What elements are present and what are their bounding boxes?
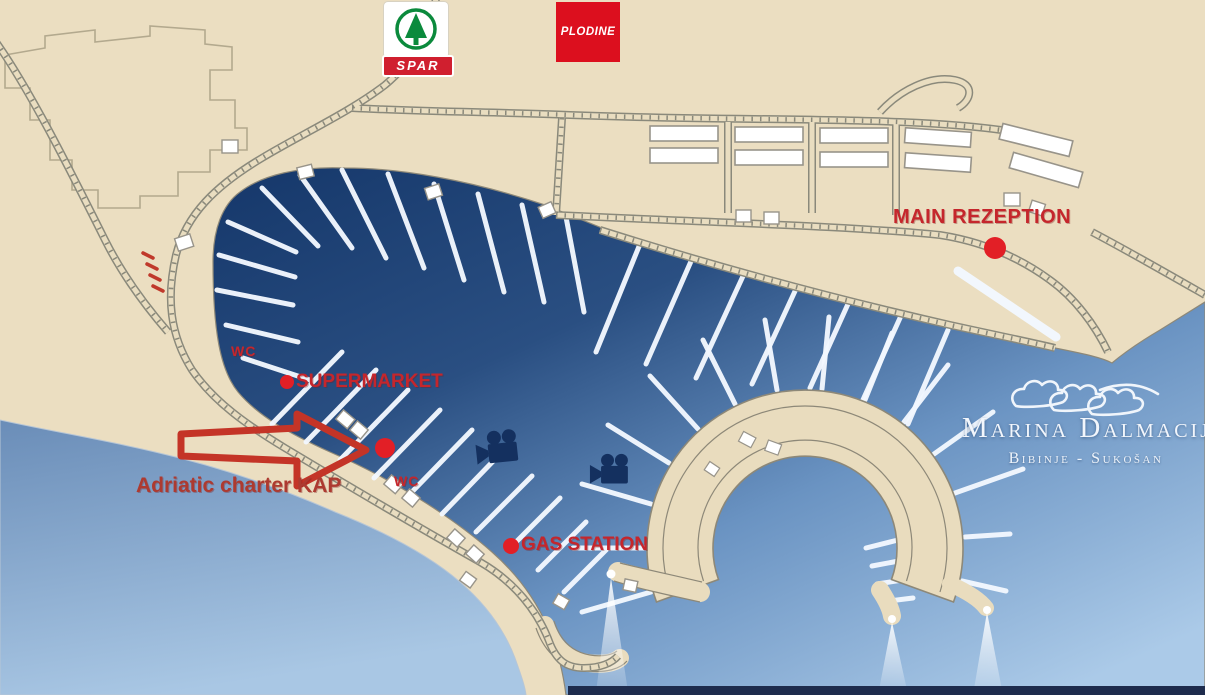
poi-label-wc-lower: WC (394, 473, 419, 489)
spar-logo: SPAR (384, 2, 448, 74)
main-reception-marker[interactable] (984, 237, 1006, 259)
poi-label-gas-station[interactable]: GAS STATION (521, 534, 648, 556)
spar-logo-label: SPAR (382, 55, 454, 77)
poi-label-main-reception[interactable]: MAIN REZEPTION (893, 206, 1071, 229)
adriatic-charter-kap-marker[interactable] (375, 438, 395, 458)
spar-tree-icon (384, 2, 448, 58)
marina-name-title: Marina Dalmacija (962, 412, 1205, 445)
supermarket-marker[interactable] (280, 375, 294, 389)
horseshoe-east-leg (880, 590, 892, 616)
marina-subtitle: Bibinje - Sukošan (962, 450, 1205, 468)
spar-logo-frame (384, 2, 448, 58)
gas-station-marker[interactable] (503, 538, 519, 554)
bottom-bar (568, 686, 1205, 695)
marina-map-page: { "map": { "labels": { "main_reception":… (0, 0, 1205, 695)
plodine-logo: PLODINE (556, 2, 620, 62)
poi-label-supermarket[interactable]: SUPERMARKET (296, 371, 443, 393)
poi-label-wc-upper: WC (231, 343, 256, 359)
marina-map (0, 0, 1205, 695)
poi-label-adriatic-charter-kap[interactable]: Adriatic charter KAP (136, 474, 341, 498)
